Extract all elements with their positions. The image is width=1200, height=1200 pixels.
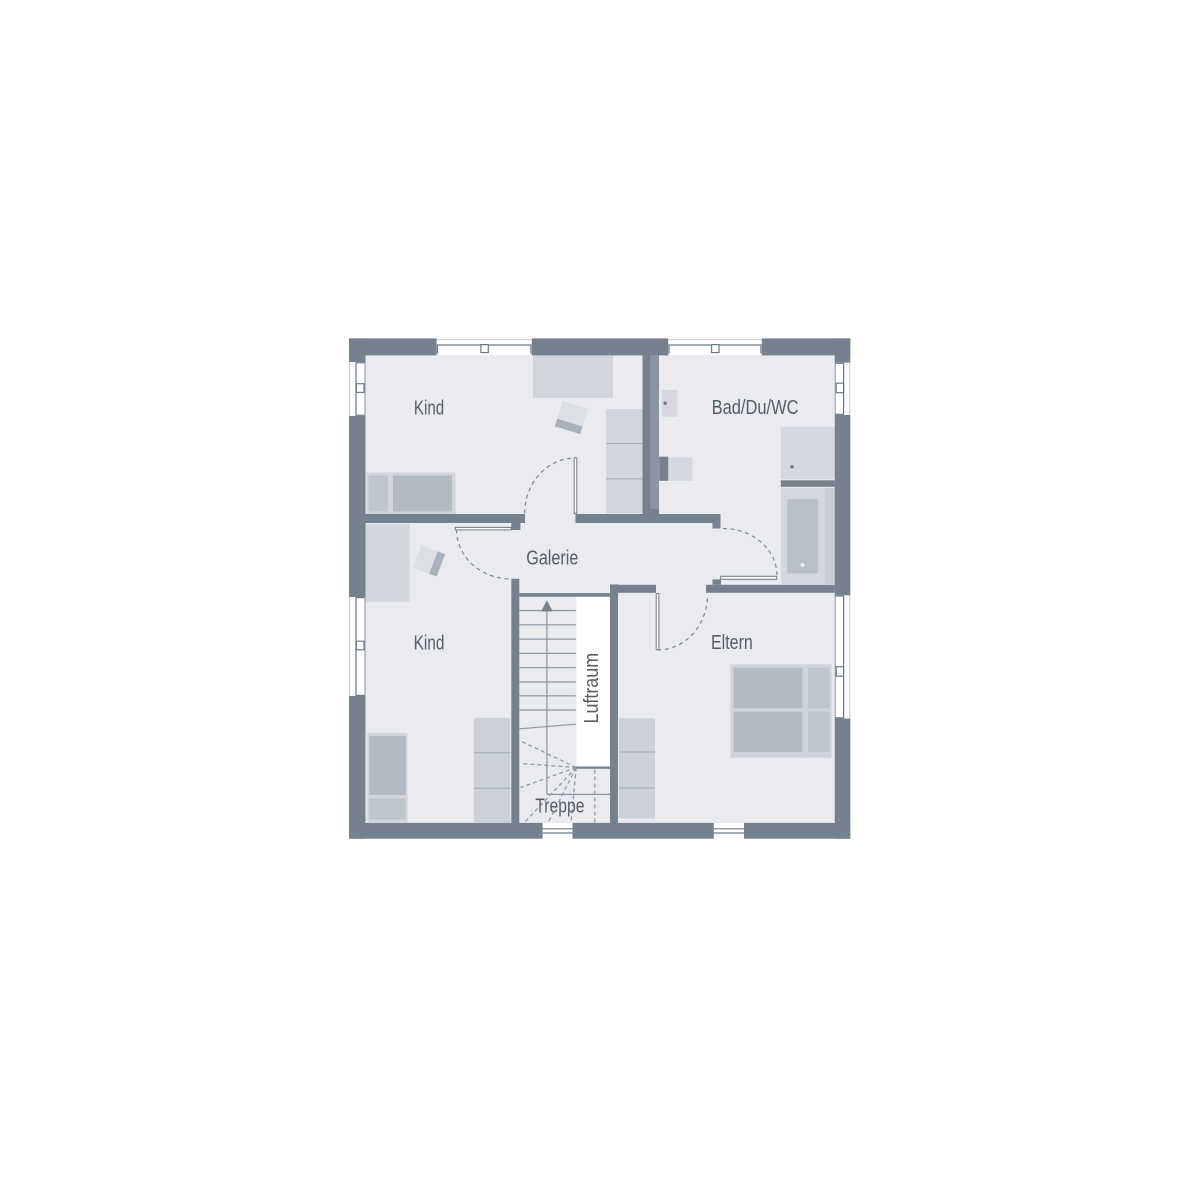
svg-text:Treppe: Treppe — [535, 795, 584, 817]
svg-text:Kind: Kind — [414, 398, 444, 420]
svg-text:Eltern: Eltern — [711, 632, 753, 654]
svg-text:Galerie: Galerie — [526, 547, 578, 569]
svg-text:Bad/Du/WC: Bad/Du/WC — [712, 397, 799, 419]
svg-text:Luftraum: Luftraum — [581, 653, 603, 724]
svg-text:Kind: Kind — [414, 633, 445, 655]
